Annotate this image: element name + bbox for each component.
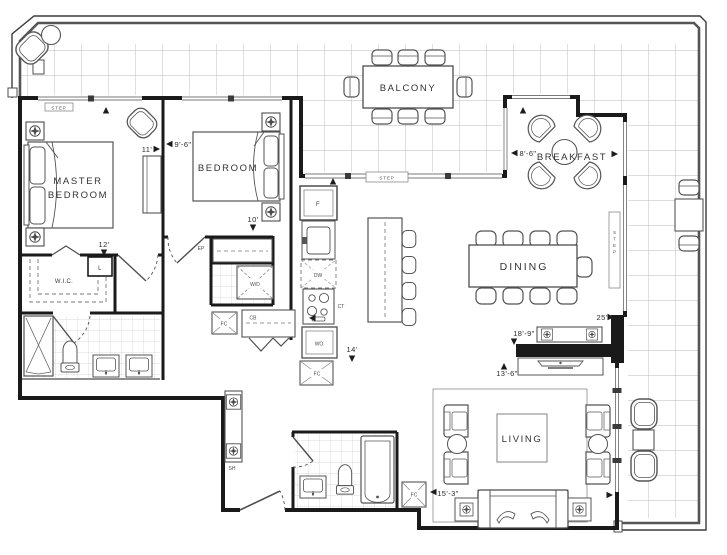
master-bedroom-label-2: BEDROOM <box>48 190 108 201</box>
floor-plan: BALCONY <box>0 0 727 555</box>
console-lamp <box>226 395 240 409</box>
nightstand-lamp <box>262 113 280 131</box>
master-bedroom: MASTER BEDROOM <box>24 105 161 246</box>
wic: W.I.C. L <box>30 257 112 302</box>
wic-label: W.I.C. <box>55 279 73 285</box>
living-armchair <box>444 405 468 437</box>
nightstand-lamp <box>262 203 280 221</box>
railing-post <box>8 88 17 97</box>
master-dresser <box>143 156 161 213</box>
wd-label: W/D <box>250 282 260 288</box>
master-chair <box>124 105 160 141</box>
wall-tv-stub <box>516 344 623 357</box>
nightstand-lamp <box>26 122 44 140</box>
dim-bedroom-width: 9'-6" <box>175 140 192 149</box>
dim-living-width: 15'-3" <box>437 489 459 498</box>
terrace-lounge-set <box>631 399 657 481</box>
nightstand-lamp <box>26 228 44 246</box>
hall-closet-bifold-door <box>249 338 289 351</box>
island <box>368 218 416 326</box>
living-armchair <box>444 452 468 484</box>
side-table-lamp <box>460 503 473 516</box>
dining-console <box>537 327 602 342</box>
cb-label: CB <box>250 316 258 322</box>
linen-label: L <box>98 266 102 272</box>
fan-coil-kitchen: FC <box>300 361 333 385</box>
living-side-table-round <box>589 435 608 454</box>
step-label: STEP <box>379 176 394 181</box>
dining-east-glazing: STEP <box>609 185 629 311</box>
step-label-vertical: STEP <box>612 230 617 256</box>
entry-door <box>240 491 285 510</box>
dining-room: DINING <box>469 231 602 342</box>
dim-bedroom-depth: 10' <box>248 215 259 224</box>
ct-label: CT <box>338 304 345 310</box>
living-armchair <box>586 405 610 437</box>
fan-coil-corridor: FC <box>402 482 426 507</box>
master-window: STEP <box>38 95 142 111</box>
terrace-table <box>675 199 703 231</box>
dim-living-upper-width: 13'-6" <box>496 369 518 378</box>
bedroom-window <box>182 95 282 102</box>
master-bedroom-label-1: MASTER <box>53 176 102 187</box>
fc-label: FC <box>221 322 228 328</box>
living-side-table-round <box>448 435 467 454</box>
dining-label: DINING <box>500 261 549 273</box>
fc-label: FC <box>314 372 321 378</box>
breakfast-label: BREAKFAST <box>537 152 607 163</box>
wic-bifold-door <box>52 246 80 255</box>
fan-coil-hall: FC <box>212 312 237 334</box>
fc-label: FC <box>411 493 418 499</box>
terrace-side-table <box>633 430 654 450</box>
toilet <box>336 465 353 494</box>
dim-kitchen-width: 14' <box>347 345 358 354</box>
dim-master-depth: 12' <box>99 240 110 249</box>
bathtub <box>361 436 394 503</box>
side-table-lamp <box>573 503 586 516</box>
fridge: F <box>300 186 337 220</box>
dw-label: DW <box>314 273 323 279</box>
bedroom-label: BEDROOM <box>198 163 258 174</box>
terrace-bistro-set <box>675 180 703 251</box>
fridge-label: F <box>316 202 320 208</box>
ep-closet <box>213 239 272 262</box>
wo-label: WO <box>315 342 324 348</box>
kitchen-glazing: STEP <box>305 172 502 182</box>
cb-cabinet: CB <box>242 310 295 337</box>
dim-master-width: 11' <box>142 145 153 154</box>
living-room: LIVING <box>433 358 610 528</box>
kitchen-sink <box>302 221 335 259</box>
cooktop: CT <box>303 289 344 324</box>
console-lamp <box>226 444 240 458</box>
terrace-round-table <box>42 26 61 45</box>
living-armchair <box>586 452 610 484</box>
entry: SH <box>225 391 242 472</box>
dim-terrace-east: 25' <box>597 313 608 322</box>
toilet <box>61 341 79 372</box>
kitchen: F DW CT WO <box>300 186 416 385</box>
wall-oven: WO <box>302 327 337 358</box>
tv-console <box>518 358 603 375</box>
dishwasher: DW <box>301 260 336 288</box>
step-label: STEP <box>51 105 66 110</box>
dim-dining-width: 18'-9" <box>513 329 535 338</box>
living-label: LIVING <box>502 434 543 445</box>
sofa <box>478 490 568 528</box>
washer-dryer: W/D <box>237 266 273 299</box>
balcony-label: BALCONY <box>380 83 437 94</box>
master-door <box>118 255 158 281</box>
bedroom: BEDROOM <box>193 113 284 221</box>
living-label-box: LIVING <box>497 414 547 462</box>
floor-plan-drawing: BALCONY <box>0 0 727 555</box>
sh-label: SH <box>229 466 236 472</box>
ep-label: EP <box>198 246 205 252</box>
bath-sink <box>300 476 326 498</box>
shower <box>24 316 53 376</box>
living-east-glazing <box>613 368 622 492</box>
dim-breakfast-width: 8'-6" <box>520 149 537 158</box>
